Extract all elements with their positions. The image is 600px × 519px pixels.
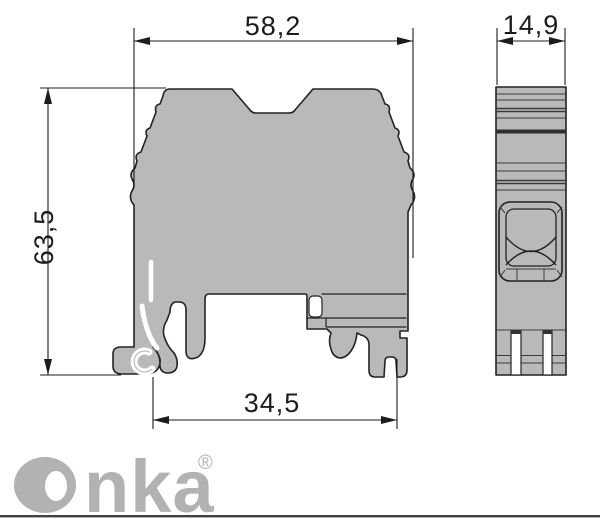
logo-o-counter [45, 471, 67, 501]
dimension-rail-width: 34,5 [153, 359, 397, 429]
arrowhead-right [381, 416, 397, 424]
latch-slot-right [309, 296, 322, 317]
clamp-opening [499, 202, 562, 281]
registered-trademark: ® [198, 452, 213, 474]
side-dark-band [496, 130, 566, 134]
logo-wordmark-tail: nka [84, 445, 215, 519]
footer-line [0, 515, 600, 517]
arrowhead-top [44, 88, 52, 104]
dim-label-front-width: 58,2 [245, 11, 302, 41]
arrowhead-left [134, 37, 150, 45]
onka-logo: nka ® [14, 445, 215, 519]
front-body-outline [113, 89, 415, 377]
dim-label-front-height: 63,5 [29, 209, 59, 266]
dim-label-rail-width: 34,5 [244, 388, 301, 418]
technical-drawing: 58,2 14,9 63,5 34,5 nka ® [0, 0, 600, 519]
arrowhead-left [153, 416, 169, 424]
arrowhead-right [397, 37, 413, 45]
front-view [113, 89, 415, 377]
dim-label-side-width: 14,9 [503, 10, 560, 40]
side-view [496, 87, 566, 375]
drawing-canvas: 58,2 14,9 63,5 34,5 nka ® [0, 0, 600, 519]
arrowhead-bottom [44, 359, 52, 375]
dimension-side-width: 14,9 [497, 10, 565, 85]
